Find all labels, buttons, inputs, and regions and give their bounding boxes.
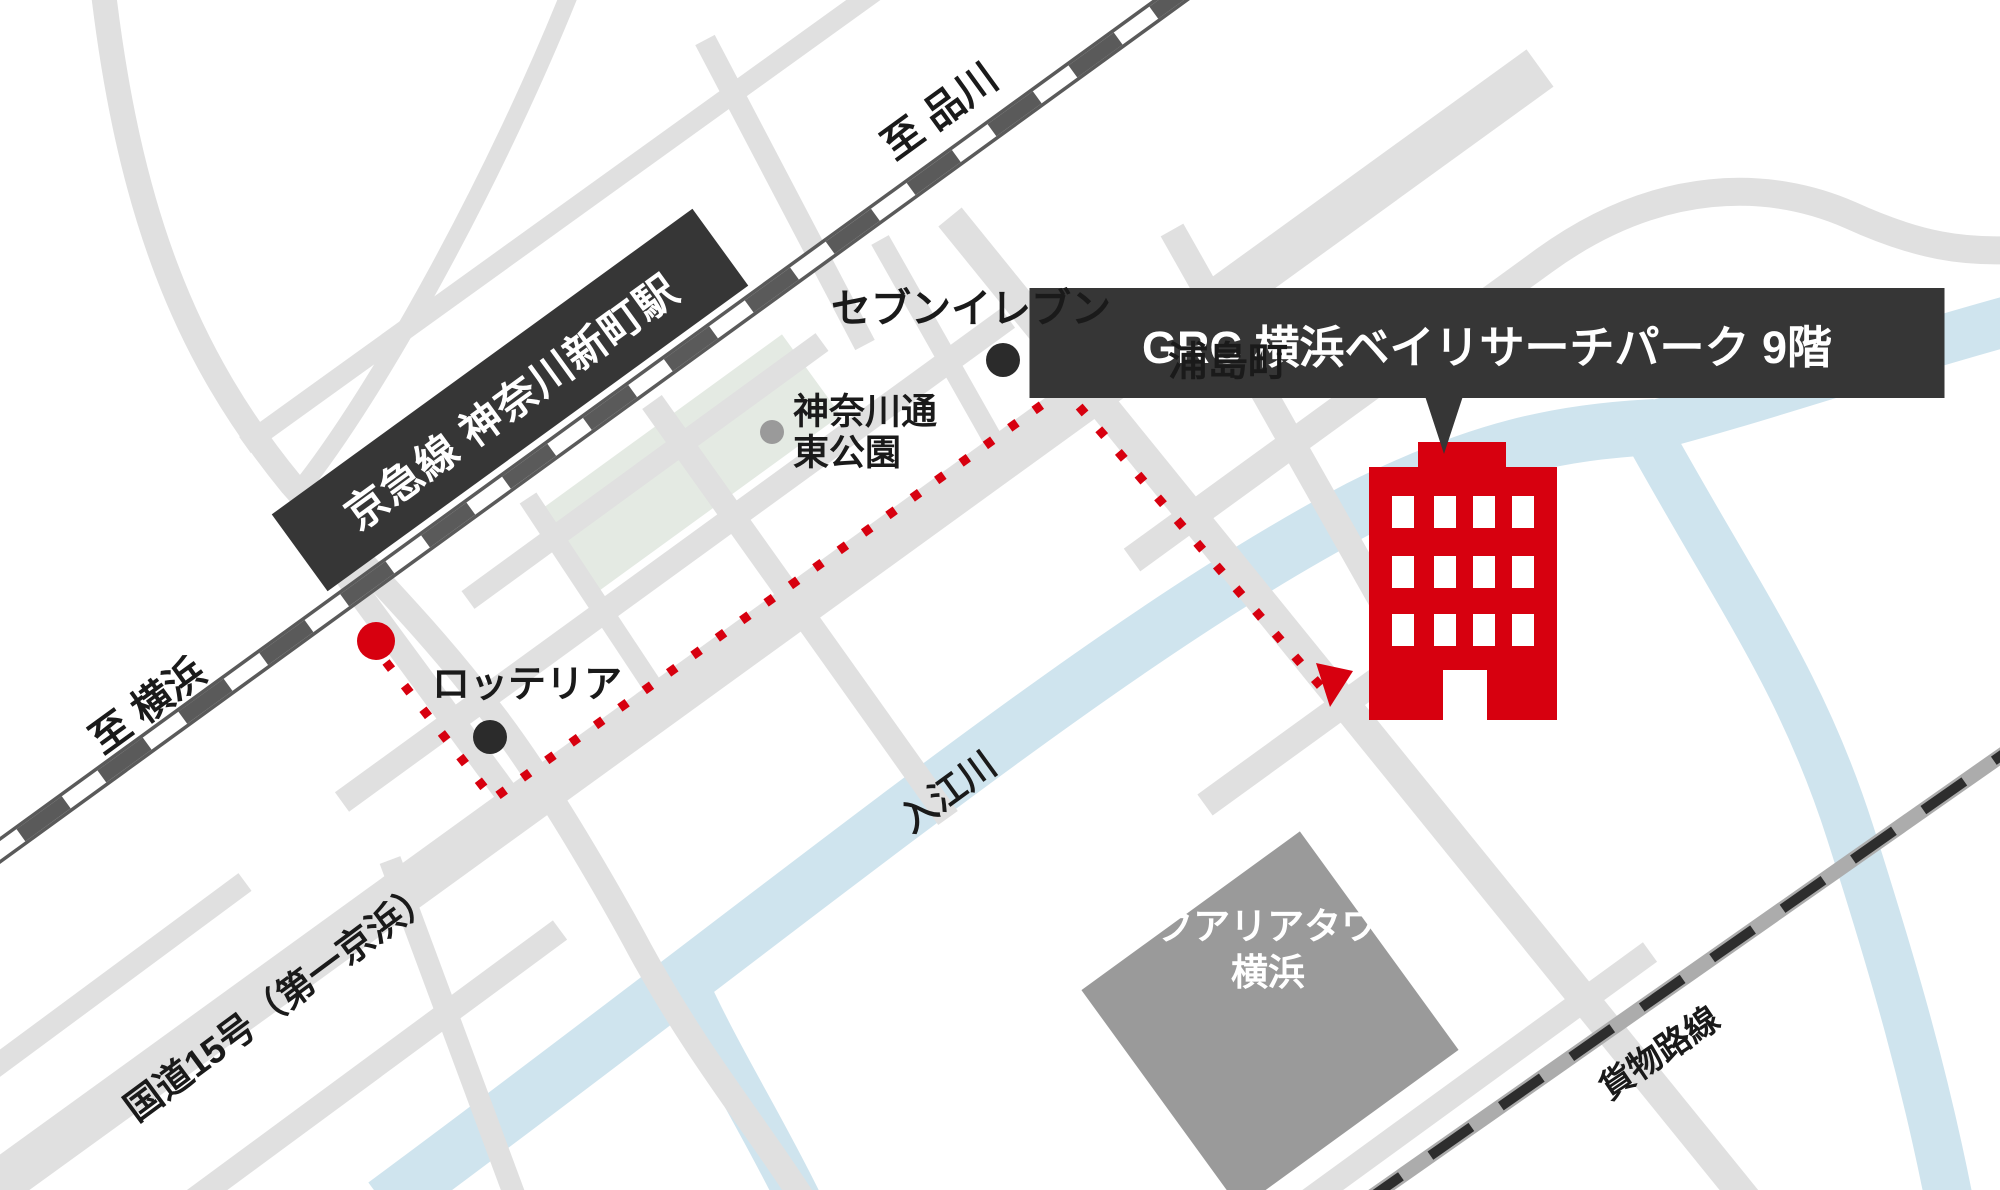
destination-building-icon — [1369, 442, 1557, 720]
urashimacho-label: 浦島町 — [1168, 339, 1288, 385]
park-label-line2: 東公園 — [793, 432, 937, 473]
aqualia-tower-label-line1: アクアリアタワー — [1121, 904, 1415, 950]
seven-eleven-label: セブンイレブン — [831, 286, 1111, 332]
destination-label-box: GRC 横浜ベイリサーチパーク 9階 — [1030, 288, 1945, 398]
park-label: 神奈川通 東公園 — [793, 391, 937, 474]
park-label-line1: 神奈川通 — [793, 391, 937, 432]
river-branch-south-icon — [1647, 432, 1950, 1190]
station-start-marker-icon — [357, 622, 395, 660]
seven-eleven-marker-icon — [986, 343, 1020, 377]
aqualia-tower-label-line2: 横浜 — [1121, 950, 1415, 996]
aqualia-tower-label: アクアリアタワー 横浜 — [1121, 904, 1415, 997]
lotteria-marker-icon — [473, 720, 507, 754]
park-marker-icon — [760, 420, 784, 444]
destination-pointer-icon — [1425, 396, 1463, 454]
access-map: 至 品川 至 横浜 京急線 神奈川新町駅 GRC 横浜ベイリサーチパーク 9階 … — [0, 0, 2000, 1190]
lotteria-label: ロッテリア — [432, 664, 622, 708]
building-door — [1443, 670, 1487, 720]
